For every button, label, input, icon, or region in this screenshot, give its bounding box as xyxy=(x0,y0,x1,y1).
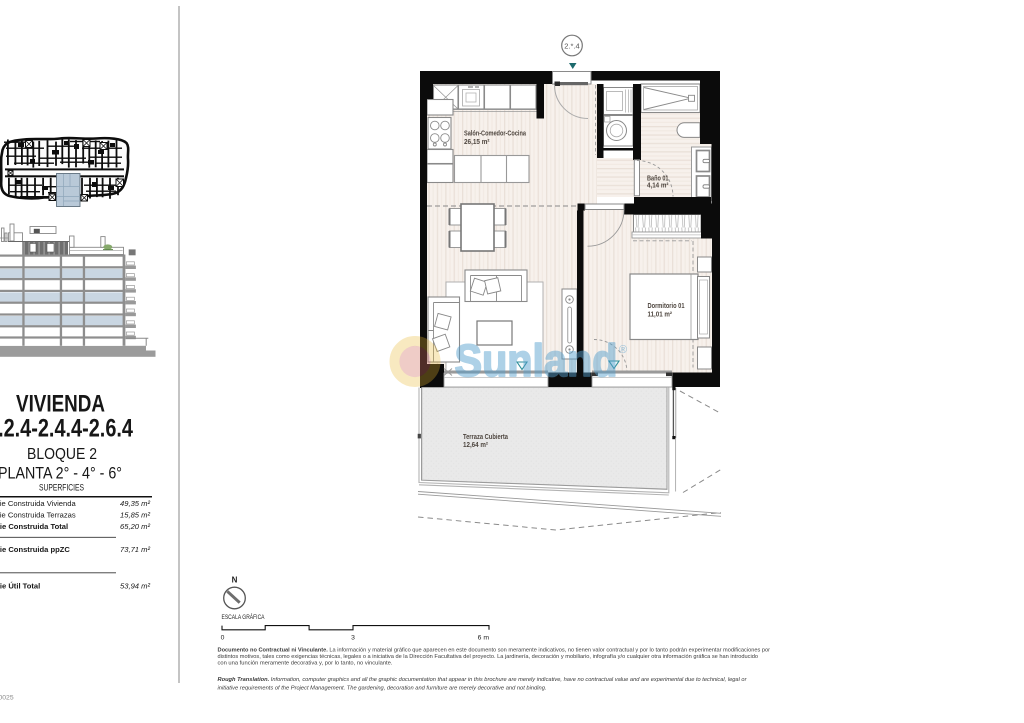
svg-text:distintos motivos, tales como: distintos motivos, tales como exigencias… xyxy=(218,654,759,660)
svg-text:2.2.4-2.4.4-2.6.4: 2.2.4-2.4.4-2.6.4 xyxy=(0,415,133,443)
svg-text:N: N xyxy=(232,576,238,585)
svg-text:3: 3 xyxy=(351,635,355,642)
svg-text:Superficie Construida Terrazas: Superficie Construida Terrazas xyxy=(0,510,76,519)
svg-text:26,15 m²: 26,15 m² xyxy=(464,137,490,146)
svg-text:BLOQUE 2: BLOQUE 2 xyxy=(27,446,97,463)
svg-text:Superficie Útil Total: Superficie Útil Total xyxy=(0,581,40,590)
svg-text:Rough Translation. Information: Rough Translation. Information, computer… xyxy=(218,677,748,683)
svg-text:4,14 m²: 4,14 m² xyxy=(647,181,669,190)
svg-text:6 m: 6 m xyxy=(478,635,490,642)
svg-text:0: 0 xyxy=(221,635,225,642)
svg-text:Superficie Construida Vivienda: Superficie Construida Vivienda xyxy=(0,499,76,508)
svg-text:49,35 m²: 49,35 m² xyxy=(120,499,150,508)
svg-text:Sunland: Sunland xyxy=(455,335,618,386)
svg-text:ESCALA GRÁFICA: ESCALA GRÁFICA xyxy=(222,612,265,621)
svg-text:12,64 m²: 12,64 m² xyxy=(463,440,489,449)
svg-text:Superficie Construida Total: Superficie Construida Total xyxy=(0,522,68,531)
svg-text:®: ® xyxy=(619,344,627,356)
svg-text:initiative requirements of the: initiative requirements of the Project M… xyxy=(218,686,547,692)
svg-text:73,71 m²: 73,71 m² xyxy=(120,545,150,554)
svg-text:15,85 m²: 15,85 m² xyxy=(120,510,150,519)
svg-text:65,20 m²: 65,20 m² xyxy=(120,522,150,531)
svg-text:Superficie Construida ppZC: Superficie Construida ppZC xyxy=(0,545,70,554)
svg-text:Documento no Contractual ni Vi: Documento no Contractual ni Vinculante. … xyxy=(218,648,771,654)
svg-text:53,94 m²: 53,94 m² xyxy=(120,581,150,590)
svg-text:con una función meramente deco: con una función meramente decorativa y, … xyxy=(218,661,393,667)
svg-text:0025: 0025 xyxy=(0,695,14,702)
svg-text:2.*.4: 2.*.4 xyxy=(564,41,579,50)
svg-text:VIVIENDA: VIVIENDA xyxy=(16,391,105,418)
svg-text:PLANTA 2° - 4° - 6°: PLANTA 2° - 4° - 6° xyxy=(0,465,122,483)
svg-text:11,01 m²: 11,01 m² xyxy=(648,310,673,319)
svg-text:SUPERFICIES: SUPERFICIES xyxy=(39,483,84,493)
